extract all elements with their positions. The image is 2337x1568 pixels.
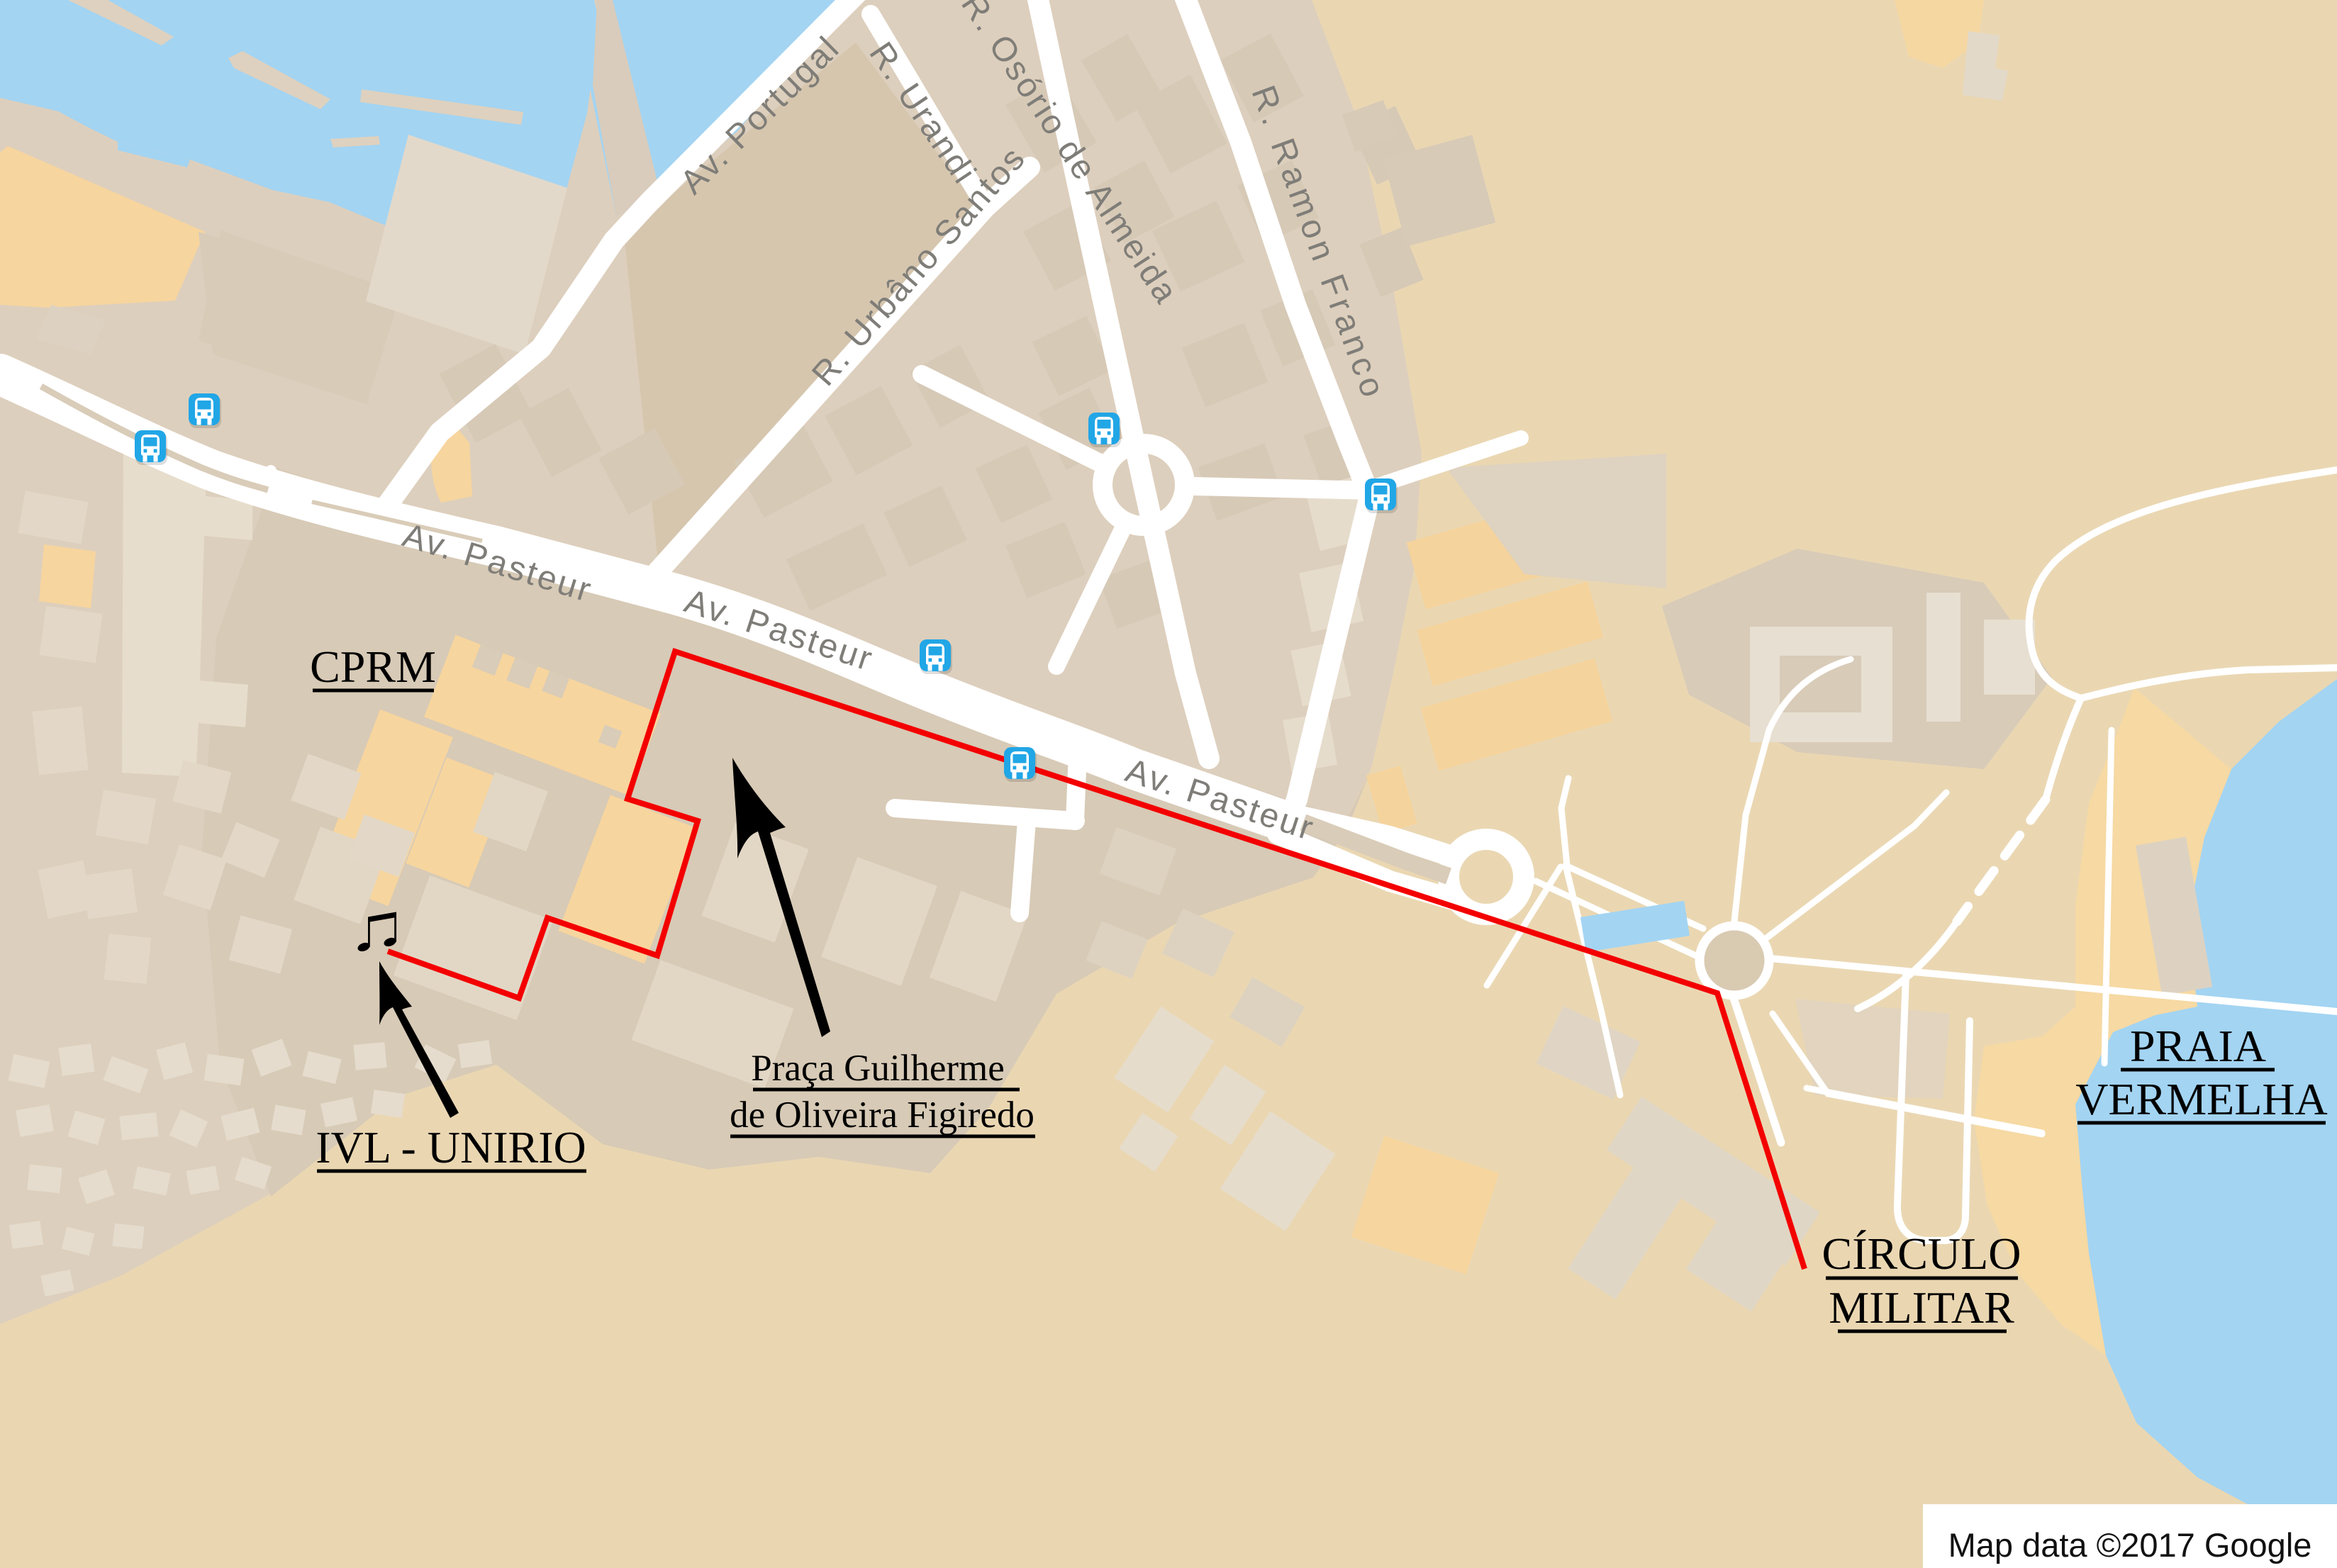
svg-text:Map data ©2017 Google: Map data ©2017 Google [1948, 1526, 2312, 1564]
svg-text:PRAIA: PRAIA [2130, 1021, 2266, 1071]
svg-text:MILITAR: MILITAR [1829, 1282, 2014, 1333]
svg-text:de Oliveira Figiredo: de Oliveira Figiredo [730, 1094, 1034, 1136]
svg-text:IVL - UNIRIO: IVL - UNIRIO [316, 1122, 586, 1172]
svg-text:CPRM: CPRM [310, 642, 436, 692]
svg-text:VERMELHA: VERMELHA [2075, 1074, 2328, 1124]
svg-text:CÍRCULO: CÍRCULO [1822, 1228, 2021, 1279]
svg-text:Praça Guilherme: Praça Guilherme [751, 1048, 1005, 1089]
